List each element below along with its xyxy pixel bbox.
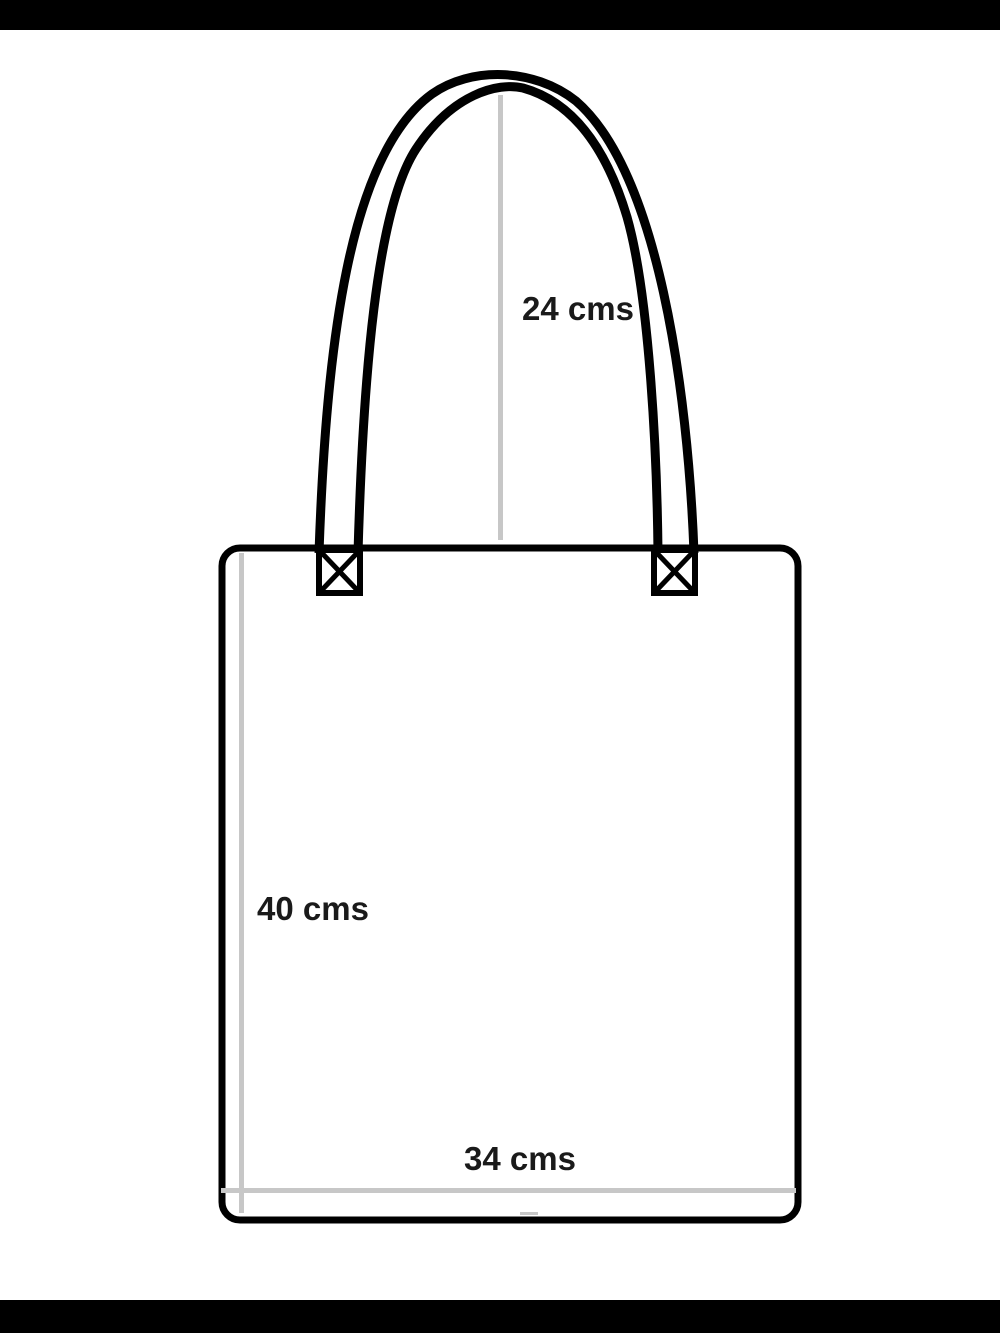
right-attachment-box-cross bbox=[654, 550, 695, 593]
bag-body-outline bbox=[222, 548, 798, 1220]
handle-height-label: 24 cms bbox=[522, 292, 634, 325]
bag-drawing bbox=[0, 0, 1000, 1333]
bag-height-label: 40 cms bbox=[257, 892, 369, 925]
right-attachment-box bbox=[654, 550, 695, 593]
bag-width-label: 34 cms bbox=[464, 1142, 576, 1175]
tote-bag-dimension-diagram: 24 cms 40 cms 34 cms bbox=[0, 0, 1000, 1333]
bag-handle bbox=[319, 75, 694, 553]
left-attachment-box bbox=[319, 550, 360, 593]
left-attachment-box-cross bbox=[319, 550, 360, 593]
